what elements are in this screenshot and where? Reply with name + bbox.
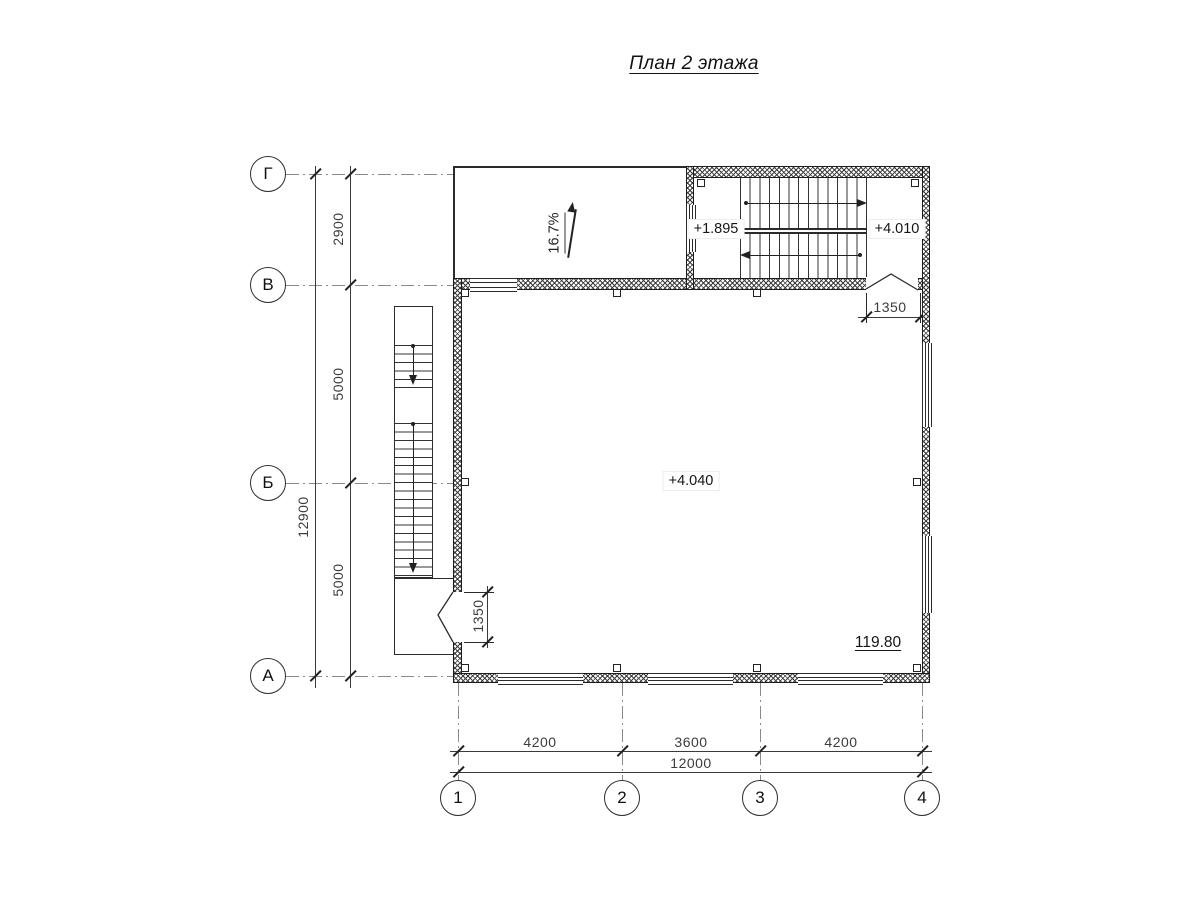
ramp-area xyxy=(453,166,687,279)
dimension-line-left-segments xyxy=(350,166,351,688)
window-opening-top-left xyxy=(470,278,517,292)
grid-axis-line-4 xyxy=(922,683,923,780)
elevation-label-stair-upper-landing: +4.010 xyxy=(870,220,925,238)
grid-bubble-col-1-label: 1 xyxy=(453,788,462,808)
column-mark xyxy=(613,289,621,297)
wall-stair-top xyxy=(686,166,930,178)
stair-flight-2-arrow-head-icon xyxy=(409,563,417,573)
grid-axis-line-a xyxy=(286,676,453,677)
grid-bubble-col-3: 3 xyxy=(742,780,778,816)
ramp-direction-arrow-head-icon xyxy=(567,201,576,212)
column-mark xyxy=(697,179,705,187)
stair-flight-2-arrow xyxy=(413,424,415,564)
ramp-slope-label: 16.7% xyxy=(547,212,566,253)
column-mark xyxy=(461,664,469,672)
dimension-text-4200-right: 4200 xyxy=(824,734,857,750)
column-mark xyxy=(913,478,921,486)
window-opening-bottom-2 xyxy=(648,673,733,685)
dimension-text-right-door: 1350 xyxy=(873,299,906,315)
elevation-label-stair-mid-landing: +1.895 xyxy=(689,220,744,238)
door-leaf-stair-to-room xyxy=(864,270,920,292)
extension-line xyxy=(464,592,494,593)
stair-flight-1-arrow xyxy=(413,346,415,376)
window-opening-bottom-3 xyxy=(798,673,883,685)
column-mark xyxy=(613,664,621,672)
stair-up-arrow-head-icon xyxy=(857,199,867,207)
grid-bubble-row-v-label: В xyxy=(262,275,273,295)
window-opening-bottom-1 xyxy=(498,673,583,685)
grid-bubble-row-a-label: А xyxy=(262,666,273,686)
grid-bubble-row-g-label: Г xyxy=(263,164,272,184)
grid-bubble-row-a: А xyxy=(250,658,286,694)
dimension-text-5000-lower: 5000 xyxy=(330,563,346,596)
elevation-label-main-floor: +4.040 xyxy=(664,472,719,490)
grid-bubble-row-b-label: Б xyxy=(262,473,273,493)
extension-line xyxy=(866,293,867,323)
stair-down-arrow xyxy=(750,255,860,257)
dimension-text-5000-upper: 5000 xyxy=(330,367,346,400)
column-mark xyxy=(753,289,761,297)
dimension-line-bottom-segments xyxy=(450,751,932,752)
grid-bubble-col-2-label: 2 xyxy=(617,788,626,808)
grid-axis-line-v xyxy=(286,285,453,286)
dimension-text-left-overall: 12900 xyxy=(295,496,311,537)
grid-bubble-row-v: В xyxy=(250,267,286,303)
stair-up-arrow xyxy=(746,203,858,205)
grid-bubble-col-3-label: 3 xyxy=(755,788,764,808)
grid-bubble-col-4: 4 xyxy=(904,780,940,816)
dimension-text-bottom-overall: 12000 xyxy=(670,755,711,771)
area-label: 119.80 xyxy=(855,634,901,652)
door-leaf-left-vestibule xyxy=(434,589,456,645)
column-mark xyxy=(911,179,919,187)
grid-bubble-row-g: Г xyxy=(250,156,286,192)
column-mark xyxy=(461,289,469,297)
grid-bubble-col-2: 2 xyxy=(604,780,640,816)
column-mark xyxy=(753,664,761,672)
grid-axis-line-g xyxy=(286,174,453,175)
stair-landing-line-2 xyxy=(740,232,867,234)
stair-landing-line-1 xyxy=(740,228,867,230)
extension-line xyxy=(464,642,494,643)
grid-axis-line-3 xyxy=(760,683,761,780)
column-mark xyxy=(461,478,469,486)
dimension-text-left-door: 1350 xyxy=(470,599,486,632)
window-opening-right-lower xyxy=(922,536,932,613)
column-mark xyxy=(913,664,921,672)
dimension-line-left-overall xyxy=(315,166,316,688)
dimension-text-4200-left: 4200 xyxy=(523,734,556,750)
stair-flight-1-arrow-head-icon xyxy=(409,375,417,385)
dimension-text-2900: 2900 xyxy=(330,212,346,245)
floor-plan-drawing: План 2 этажа Г В Б А 1 2 3 4 12900 2900 … xyxy=(0,0,1200,900)
stair-down-arrow-head-icon xyxy=(740,251,750,259)
grid-axis-line-2 xyxy=(622,683,623,780)
grid-axis-line-1 xyxy=(458,683,459,780)
window-opening-right-upper xyxy=(922,343,932,427)
dimension-text-3600: 3600 xyxy=(674,734,707,750)
stair-flight-lower xyxy=(740,233,867,282)
grid-bubble-row-b: Б xyxy=(250,465,286,501)
dimension-line-bottom-overall xyxy=(450,772,932,773)
grid-bubble-col-4-label: 4 xyxy=(917,788,926,808)
extension-line xyxy=(920,293,921,323)
drawing-title: План 2 этажа xyxy=(629,53,758,75)
grid-bubble-col-1: 1 xyxy=(440,780,476,816)
